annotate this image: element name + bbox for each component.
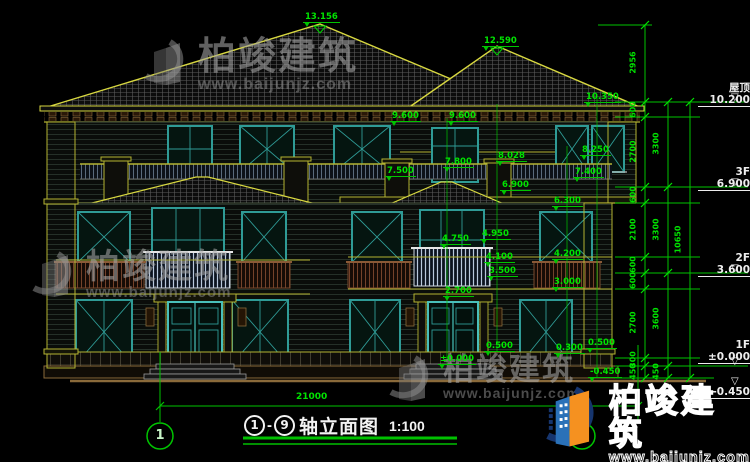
dimension-chain-label: 3600 [652, 299, 663, 339]
dimension-chain-label: 2700 [629, 132, 640, 172]
elevation-annotation: 6.900 [500, 180, 531, 191]
level-marker-value: 6.900 [698, 178, 750, 191]
title-scale: 1:100 [389, 418, 425, 434]
dimension-chain-label: 3300 [652, 210, 663, 250]
cad-elevation-screenshot: 柏竣建筑www.baijunjz.com柏竣建筑www.baijunjz.com… [0, 0, 750, 462]
elevation-annotation: 9.600 [447, 111, 478, 122]
overall-width-dimension: 21000 [296, 392, 327, 402]
elevation-annotation: 12.590 [482, 36, 519, 47]
elevation-annotation: 7.400 [573, 167, 604, 178]
elevation-annotation: 2.700 [443, 286, 474, 297]
brand-logo-text: 柏竣建筑 [609, 384, 750, 450]
brand-logo-url: www.baijunjz.com [609, 450, 750, 462]
level-marker-triangle: ▽ [731, 92, 739, 103]
elevation-annotation: 10.350 [584, 92, 621, 103]
elevation-annotation: 4.950 [480, 229, 511, 240]
elevation-annotation: 0.300 [554, 343, 585, 354]
level-marker-label: 2F [698, 252, 750, 264]
elevation-annotation: ±0.000 [438, 354, 476, 365]
level-marker-triangle: ▽ [731, 263, 739, 274]
elevation-annotation: 0.500 [484, 341, 515, 352]
level-marker-label: 1F [698, 339, 750, 351]
dimension-chain-label: 600 [629, 90, 640, 130]
brand-logo-icon [540, 384, 605, 458]
dimension-chain-label: 600 [629, 175, 640, 215]
dimension-chain-label: 2100 [629, 210, 640, 250]
elevation-annotation: 7.500 [385, 166, 416, 177]
axis-bubble-number: 1 [147, 428, 173, 443]
dimension-chain-label: 600 [629, 261, 640, 301]
elevation-annotation: 8.250 [580, 145, 611, 156]
title-axis-from-bubble: 1 [244, 415, 265, 436]
elevation-annotation: 13.156 [303, 12, 340, 23]
level-marker-triangle: ▽ [731, 177, 739, 188]
main-roof [40, 24, 644, 122]
dimension-chain-label: 3300 [652, 124, 663, 164]
elevation-annotation: 4.750 [440, 234, 471, 245]
title-axis-to-bubble: 9 [274, 415, 295, 436]
dimension-chain-label: 2956 [629, 43, 640, 83]
level-marker-value: 10.200 [698, 94, 750, 107]
brand-logo: 柏竣建筑 www.baijunjz.com [540, 384, 750, 460]
level-marker: 2F3.600 [698, 252, 750, 277]
title-dash: - [267, 417, 272, 434]
elevation-annotation: -0.450 [588, 367, 622, 378]
level-marker-label: 屋顶 [698, 82, 750, 94]
dimension-chain-label: 2700 [629, 303, 640, 343]
drawing-title: 1 - 9 轴立面图 1:100 [243, 412, 425, 439]
elevation-annotation: 3.500 [487, 266, 518, 277]
elevation-annotation: 9.600 [390, 111, 421, 122]
title-text: 轴立面图 [299, 412, 379, 439]
level-marker: 屋顶10.200 [698, 82, 750, 107]
level-marker: 1F±0.000 [698, 339, 750, 364]
elevation-annotation: 0.500 [586, 338, 617, 349]
elevation-annotation: 4.200 [552, 249, 583, 260]
elevation-annotation: 7.800 [443, 157, 474, 168]
elevation-annotation: 8.028 [496, 151, 527, 162]
level-marker-value: ±0.000 [698, 351, 750, 364]
dimension-chain-label: 10650 [674, 220, 685, 260]
level-marker: 3F6.900 [698, 166, 750, 191]
level-marker-triangle: ▽ [731, 356, 739, 367]
elevation-annotation: 3.000 [552, 277, 583, 288]
elevation-annotation: 4.100 [484, 252, 515, 263]
elevation-annotation: 6.300 [552, 196, 583, 207]
level-marker-label: 3F [698, 166, 750, 178]
level-marker-value: 3.600 [698, 264, 750, 277]
